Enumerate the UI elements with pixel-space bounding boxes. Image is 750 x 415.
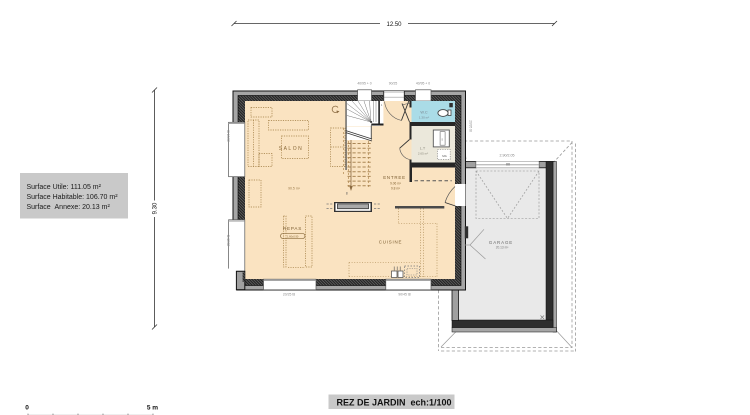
svg-text:20/95 t8: 20/95 t8	[469, 120, 473, 132]
svg-text:0: 0	[25, 405, 29, 412]
svg-text:9.06 m²: 9.06 m²	[390, 182, 401, 186]
svg-text:9.30: 9.30	[153, 202, 159, 214]
svg-text:12.50: 12.50	[386, 22, 402, 28]
svg-text:MA: MA	[442, 154, 447, 158]
svg-text:GARAGE: GARAGE	[489, 240, 513, 245]
svg-text:20/25 t8: 20/25 t8	[227, 235, 231, 247]
svg-text:5 m: 5 m	[147, 405, 158, 412]
svg-text:SALON: SALON	[279, 146, 303, 152]
svg-text:1.60x0.90: 1.60x0.90	[287, 235, 299, 239]
svg-text:W.C: W.C	[420, 111, 427, 115]
svg-text:90.5 m²: 90.5 m²	[288, 187, 301, 191]
svg-text:2.65 m²: 2.65 m²	[418, 152, 428, 156]
svg-text:40/95 + 0: 40/95 + 0	[357, 82, 371, 86]
svg-text:CUISINE: CUISINE	[379, 239, 402, 244]
svg-text:Surface Annexe: 20.13 m²: Surface Annexe: 20.13 m²	[27, 204, 111, 211]
svg-text:REPAS: REPAS	[283, 226, 302, 231]
svg-text:40/95 + 0: 40/95 + 0	[416, 82, 430, 86]
svg-text:9.8 m²: 9.8 m²	[391, 187, 400, 191]
svg-text:20.13 m²: 20.13 m²	[496, 245, 509, 249]
svg-text:REZ DE JARDIN ech:1/100: REZ DE JARDIN ech:1/100	[336, 398, 451, 408]
svg-text:Surface Habitable: 106.70 m²: Surface Habitable: 106.70 m²	[27, 194, 119, 201]
svg-text:1.30 m²: 1.30 m²	[419, 116, 429, 120]
svg-text:2.90/2.05: 2.90/2.05	[500, 154, 515, 158]
svg-text:8: 8	[346, 192, 348, 196]
svg-text:L.T: L.T	[420, 147, 426, 151]
svg-text:Surface Utile: 111.05 m²: Surface Utile: 111.05 m²	[27, 184, 102, 191]
svg-text:20/95 t8: 20/95 t8	[227, 130, 231, 142]
svg-text:90/25: 90/25	[389, 82, 398, 86]
svg-text:90/45 t8: 90/45 t8	[398, 293, 410, 297]
svg-text:20/25 t8: 20/25 t8	[283, 293, 295, 297]
svg-text:ENTREE: ENTREE	[383, 175, 406, 180]
